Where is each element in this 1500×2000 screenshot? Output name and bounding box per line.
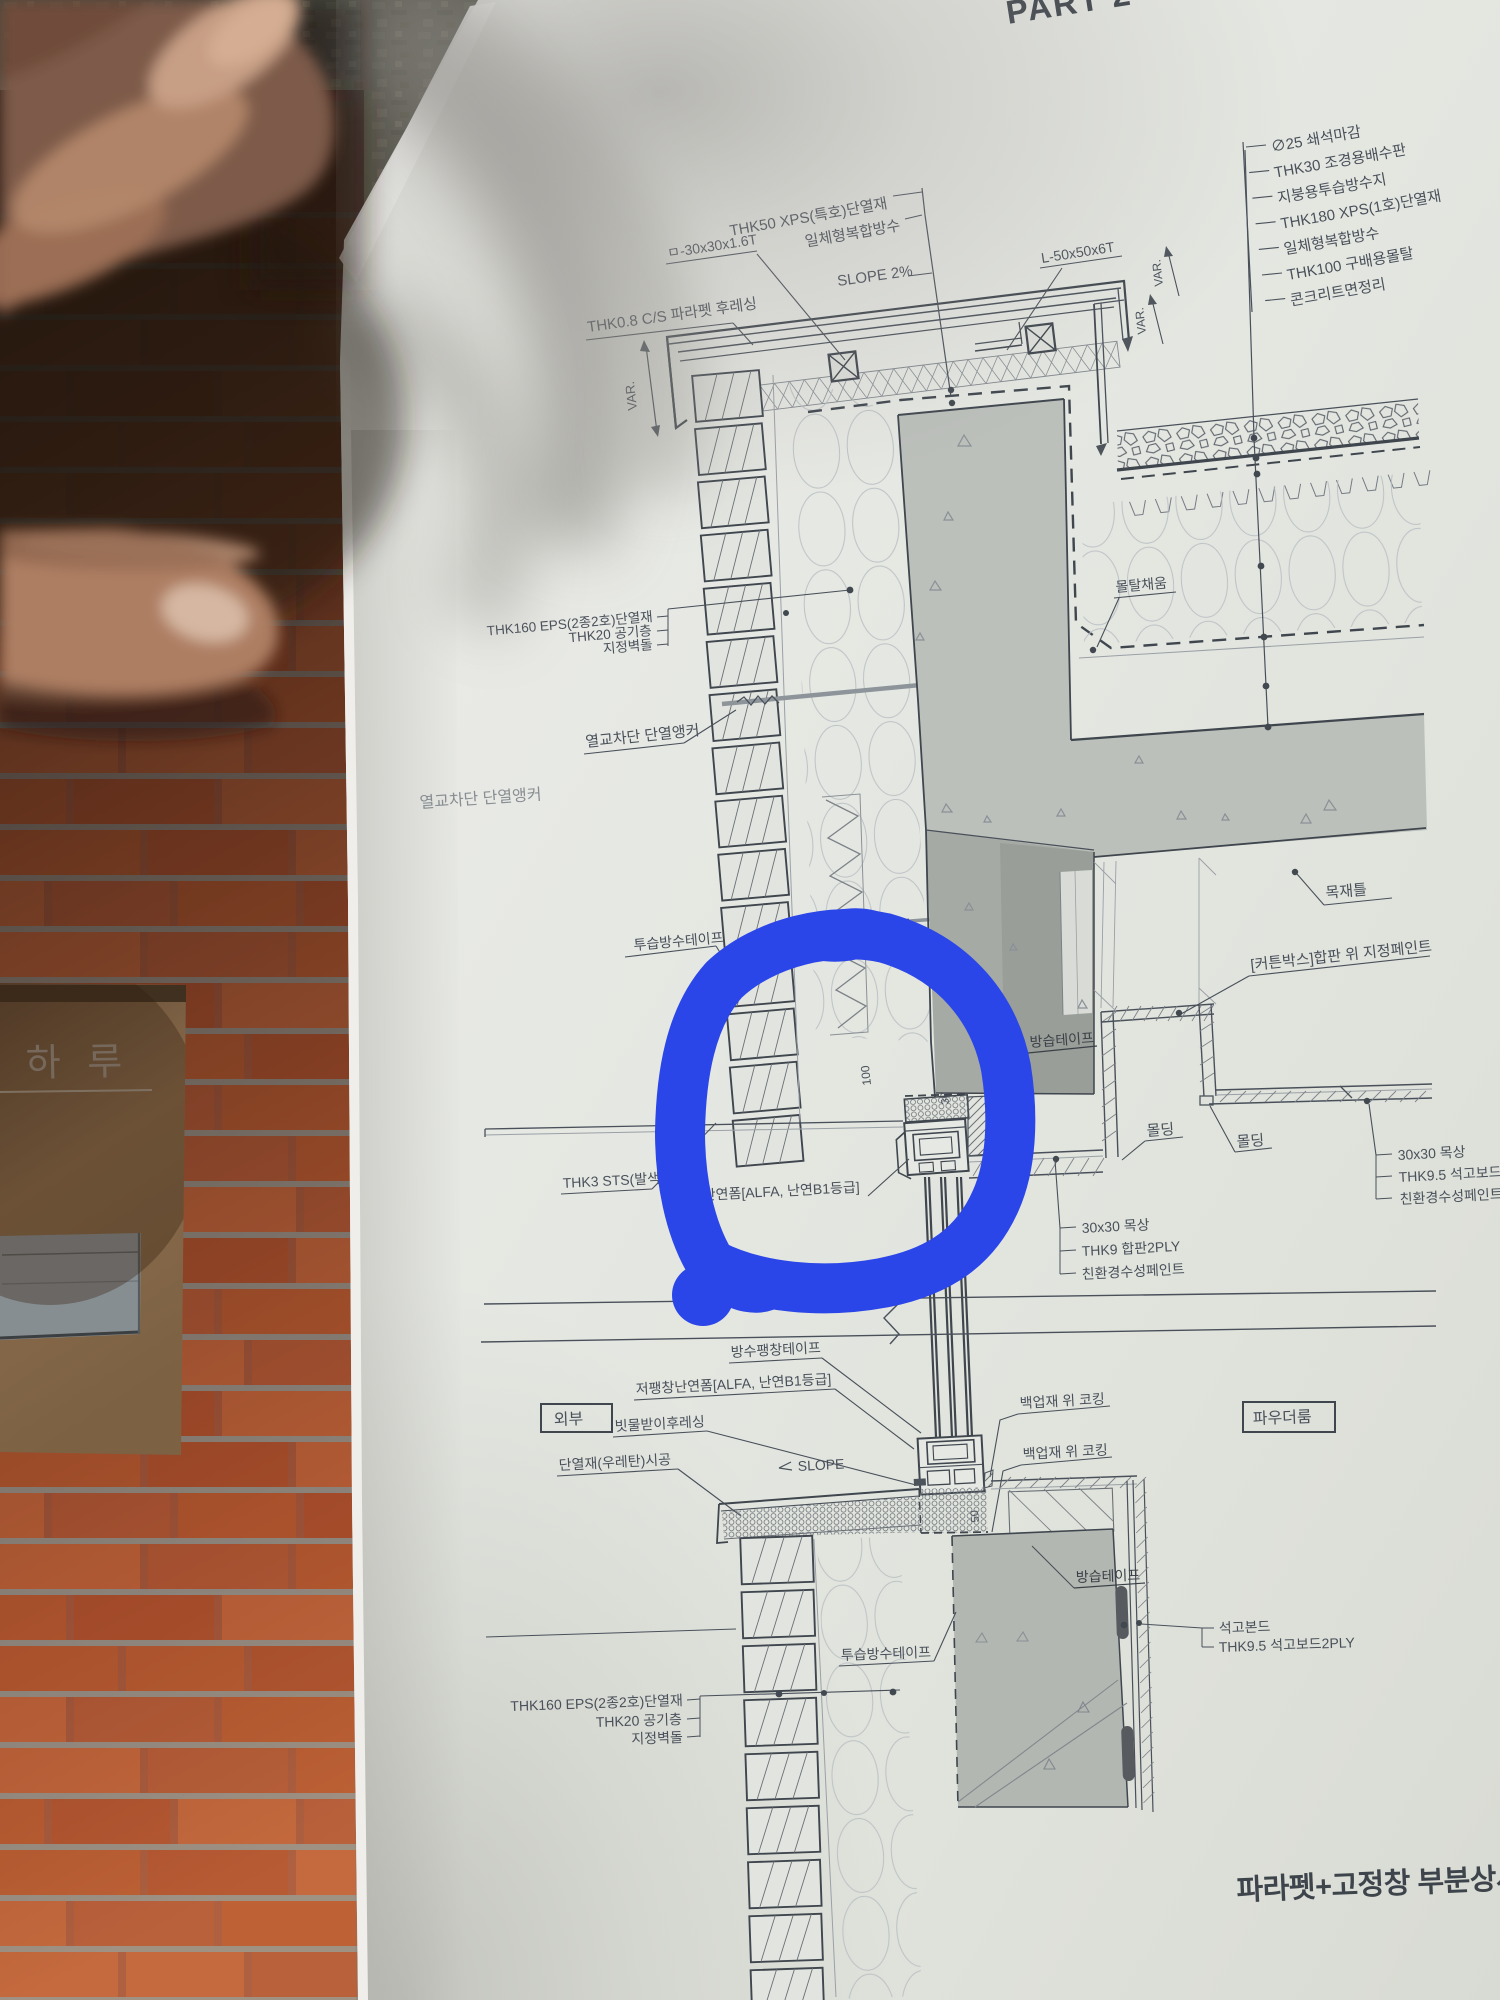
svg-text:지정벽돌: 지정벽돌: [631, 1729, 683, 1747]
svg-text:몰딩: 몰딩: [1146, 1121, 1175, 1140]
svg-text:THK20 공기층: THK20 공기층: [595, 1711, 682, 1730]
svg-text:30: 30: [939, 1092, 952, 1105]
svg-text:몰딩: 몰딩: [1236, 1132, 1265, 1151]
svg-text:외부: 외부: [554, 1410, 584, 1429]
svg-text:석고본드: 석고본드: [1219, 1618, 1271, 1636]
svg-text:SLOPE: SLOPE: [797, 1456, 844, 1474]
svg-text:방습테이프: 방습테이프: [1076, 1567, 1141, 1585]
svg-text:100: 100: [858, 1064, 874, 1086]
svg-text:투습방수테이프: 투습방수테이프: [841, 1644, 932, 1663]
svg-text:50: 50: [969, 1510, 982, 1523]
svg-text:파우더룸: 파우더룸: [1253, 1408, 1312, 1428]
svg-text:목재틀: 목재틀: [1325, 881, 1368, 902]
